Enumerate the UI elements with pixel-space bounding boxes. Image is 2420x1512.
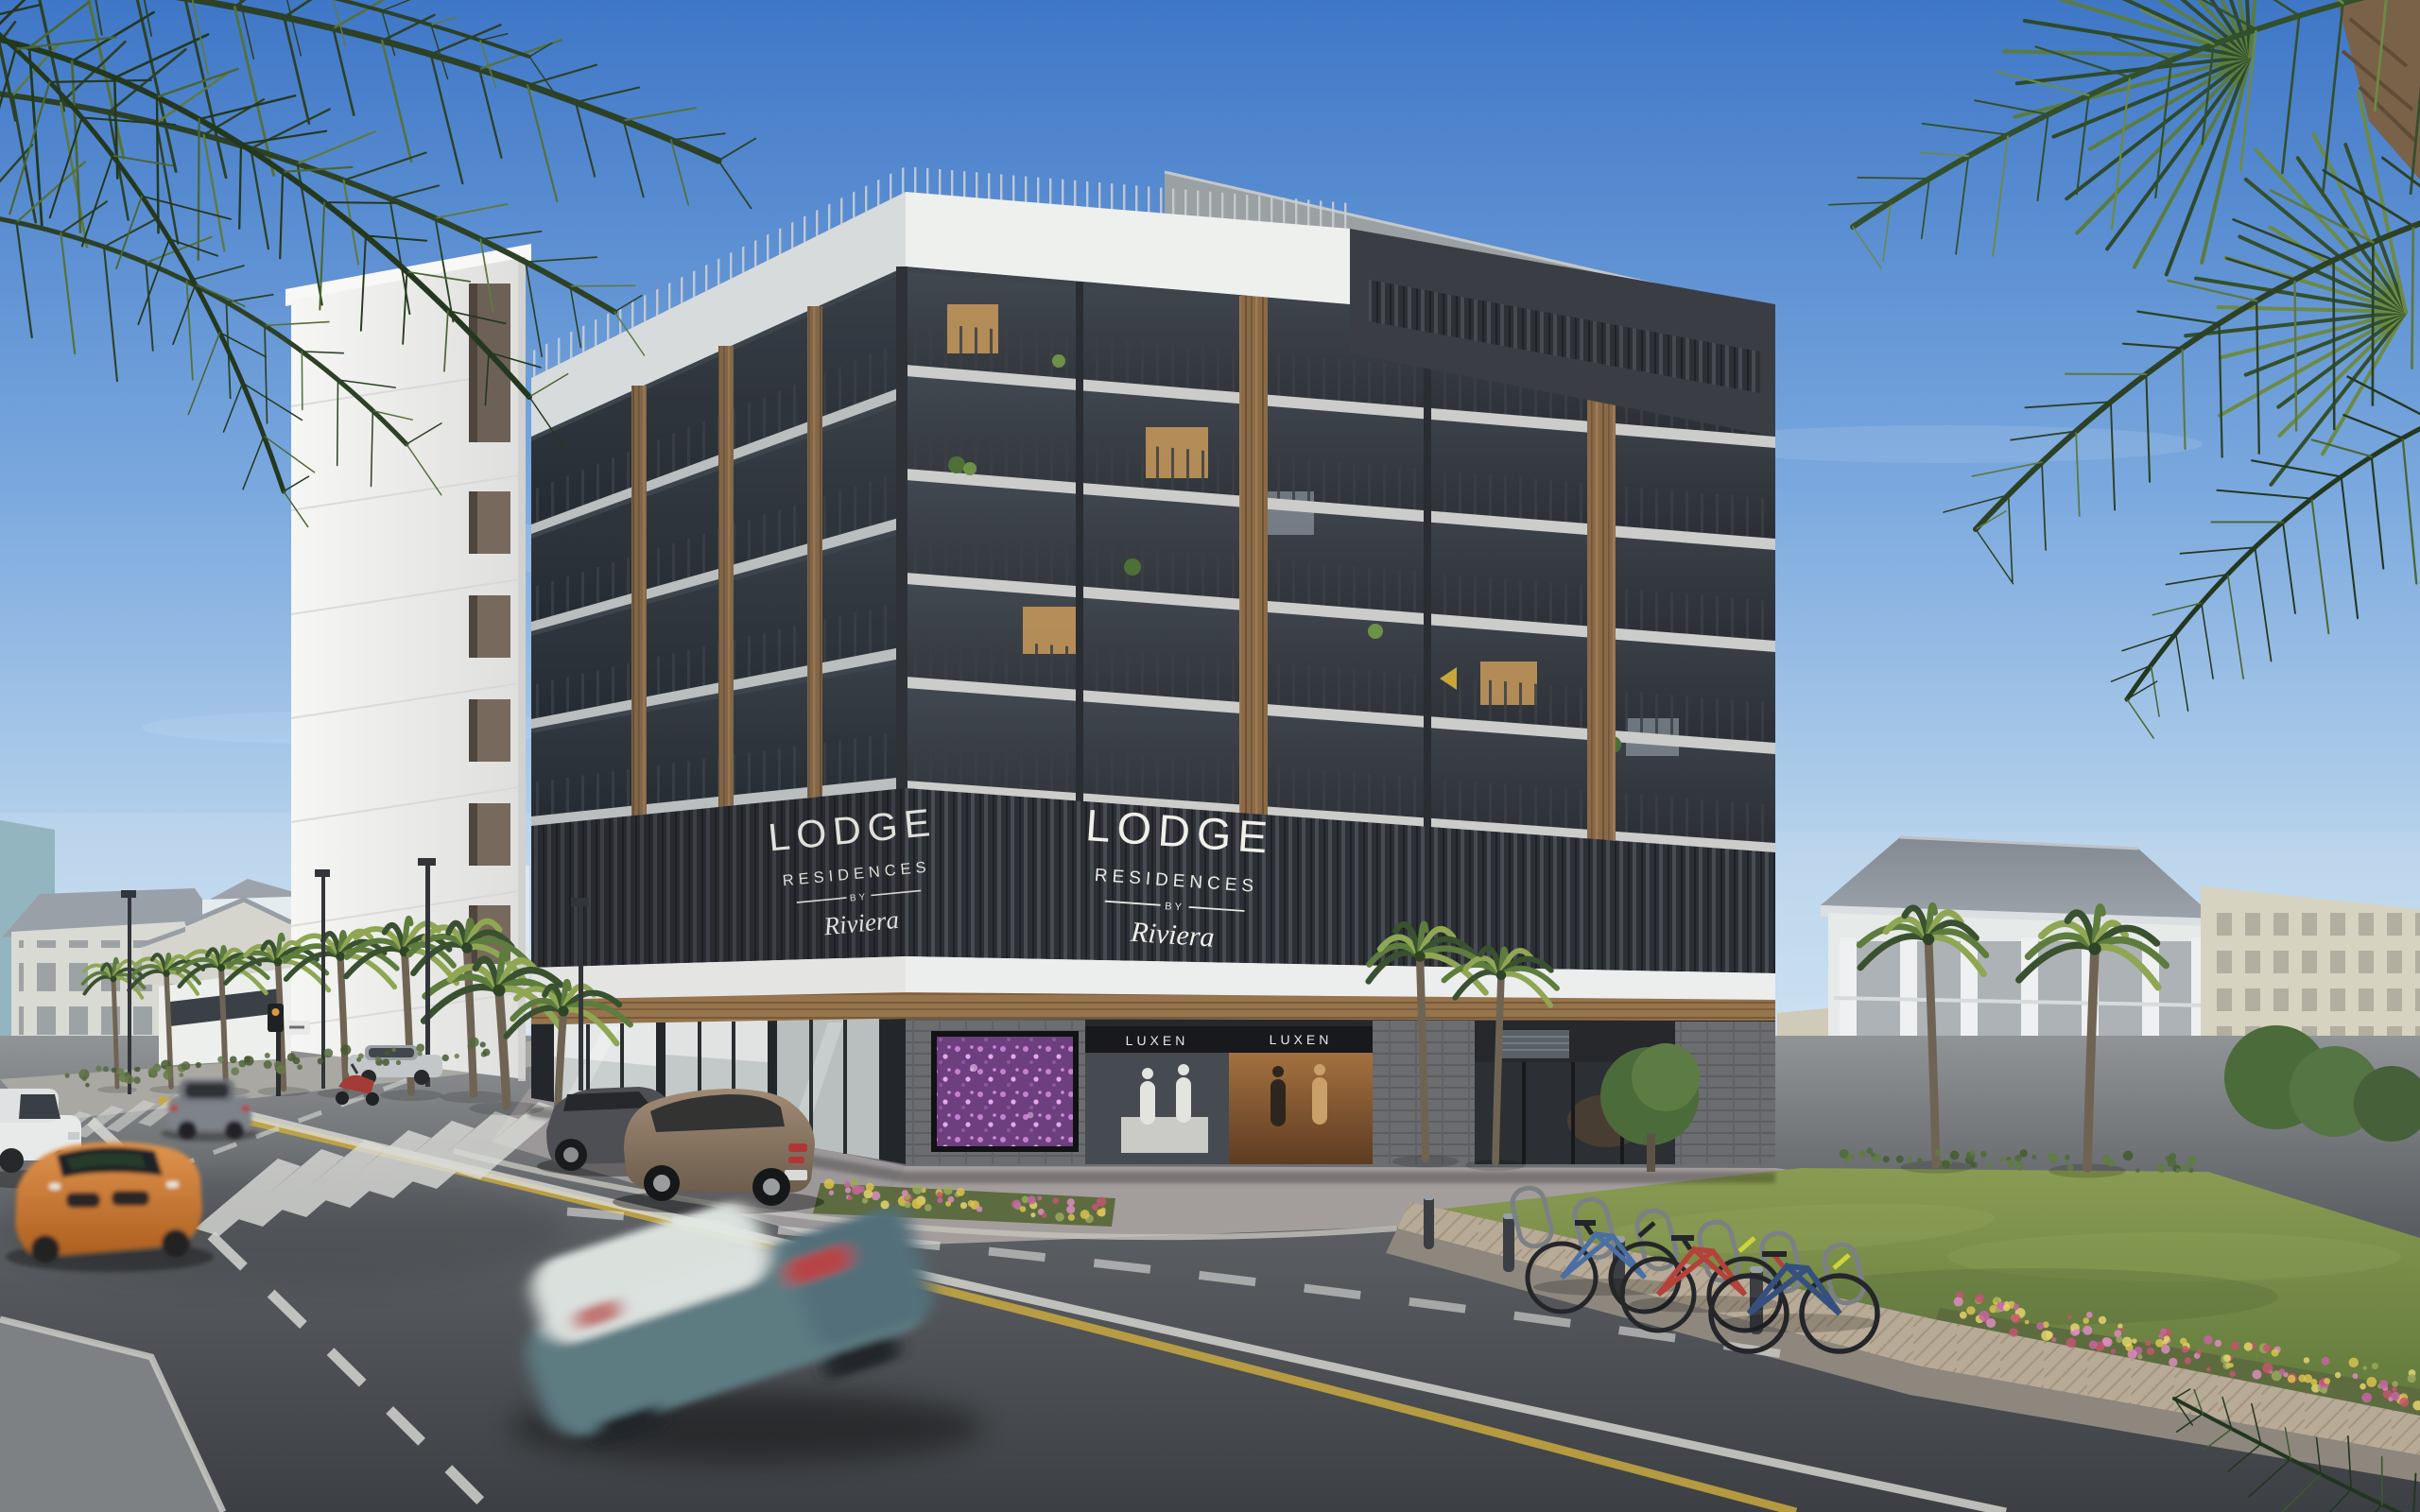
sign-by-text: BY — [1165, 901, 1184, 913]
sign-script-text: Riviera — [1129, 917, 1215, 954]
shop-sign-left: LUXEN — [1126, 1033, 1189, 1048]
shop-sign-right: LUXEN — [1270, 1032, 1333, 1047]
round-tree — [1632, 1043, 1700, 1111]
niche-shadows — [469, 283, 477, 964]
sign-by-text: BY — [849, 892, 868, 904]
main-building: LODGE RESIDENCES BY Riviera LODGE RESIDE… — [159, 166, 1775, 1183]
bronze-suv — [613, 1089, 824, 1214]
architectural-render-lodge-residences: LODGE RESIDENCES BY Riviera LODGE RESIDE… — [0, 0, 2420, 1512]
shop-window-warm — [1229, 1053, 1373, 1164]
orange-sports-car — [6, 1142, 214, 1272]
led-display-window — [934, 1034, 1076, 1149]
corner-edge — [896, 266, 907, 792]
